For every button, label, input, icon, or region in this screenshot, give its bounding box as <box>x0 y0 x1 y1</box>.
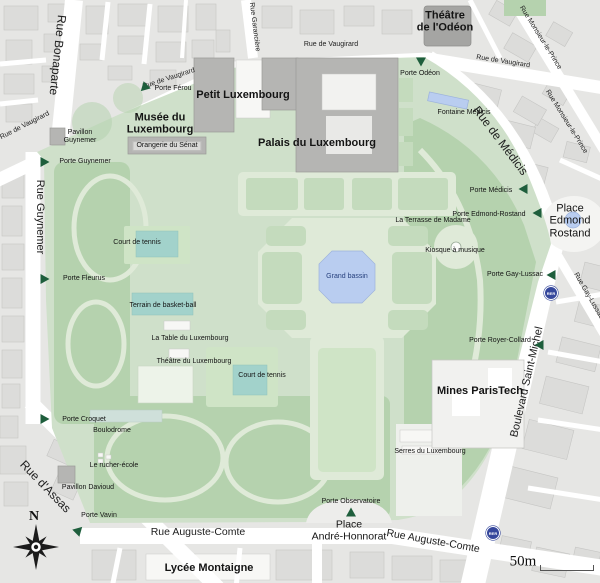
gate-label-porte-gay-lussac: Porte Gay-Lussac <box>487 271 543 279</box>
label-petit-luxembourg: Petit Luxembourg <box>196 89 290 101</box>
pavillon-davioud-building <box>58 466 75 483</box>
gate-marker-porte-observatoire <box>346 508 356 517</box>
street-label-vaugirard-center: Rue de Vaugirard <box>304 41 358 49</box>
gate-label-porte-royer-collard: Porte Royer-Collard <box>469 337 531 345</box>
gate-label-porte-croquet: Porte Croquet <box>62 416 106 424</box>
gate-marker-porte-gay-lussac <box>547 270 556 280</box>
label-table-luxembourg: La Table du Luxembourg <box>152 335 229 343</box>
table-luxembourg-building <box>164 321 190 330</box>
street-label-auguste-comte-west: Rue Auguste-Comte <box>151 527 246 539</box>
luxembourg-garden-map: Rue Bonaparte Rue de Vaugirard Rue de Va… <box>0 0 600 583</box>
gate-marker-porte-fleurus <box>41 274 50 284</box>
label-theatre-luxembourg: Théâtre du Luxembourg <box>157 358 232 366</box>
scale-bar <box>540 565 594 571</box>
tennis-south-court <box>233 365 267 395</box>
label-boulodrome: Boulodrome <box>93 427 131 435</box>
label-theatre-odeon: Théâtre de l'Odéon <box>417 10 473 35</box>
label-mines-paristech: Mines ParisTech <box>437 385 523 397</box>
gate-marker-porte-medicis <box>519 184 528 194</box>
label-palais-luxembourg: Palais du Luxembourg <box>258 137 376 149</box>
gate-label-porte-ferou: Porte Férou <box>155 85 192 93</box>
rer-station-icon-luxembourg-south: RER <box>486 526 500 540</box>
label-fontaine-medicis: Fontaine Médicis <box>438 109 491 117</box>
label-orangerie-senat: Orangerie du Sénat <box>132 141 201 151</box>
label-court-tennis-north: Court de tennis <box>113 239 160 247</box>
label-pavillon-davioud: Pavillon Davioud <box>62 484 114 492</box>
place-label-edmond-rostand: Place Edmond Rostand <box>550 203 591 240</box>
theatre-luxembourg-building <box>169 349 189 358</box>
gate-label-porte-guynemer: Porte Guynemer <box>59 158 110 166</box>
map-canvas <box>0 0 600 583</box>
label-pavillon-guynemer: Pavillon Guynemer <box>64 129 97 145</box>
label-terrain-basket: Terrain de basket-ball <box>130 302 197 310</box>
gate-marker-porte-odeon <box>416 58 426 67</box>
gate-marker-porte-royer-collard <box>535 340 544 350</box>
label-lycee-montaigne: Lycée Montaigne <box>165 562 254 574</box>
gate-label-porte-odeon: Porte Odéon <box>400 70 440 78</box>
rer-station-icon-luxembourg-north: RER <box>544 286 558 300</box>
label-serres-luxembourg: Serres du Luxembourg <box>394 448 465 456</box>
label-court-tennis-south: Court de tennis <box>238 372 285 380</box>
gate-label-porte-vavin: Porte Vavin <box>81 512 117 520</box>
label-kiosque-musique: Kiosque à musique <box>425 247 485 255</box>
theatre-luxembourg-hall <box>138 366 193 403</box>
street-label-rue-guynemer: Rue Guynemer <box>34 180 46 255</box>
gate-marker-porte-croquet <box>41 414 50 424</box>
gate-label-porte-fleurus: Porte Fleurus <box>63 275 105 283</box>
place-label-andre-honnorat: Place André-Honnorat <box>312 519 387 543</box>
gate-marker-porte-guynemer <box>41 157 50 167</box>
gate-label-porte-medicis: Porte Médicis <box>470 187 512 195</box>
palais-cour-honneur <box>322 74 376 110</box>
label-grand-bassin: Grand bassin <box>326 273 368 281</box>
scale-label: 50m <box>510 554 537 571</box>
compass-rose-icon <box>10 521 62 573</box>
gate-label-porte-observatoire: Porte Observatoire <box>322 498 381 506</box>
gate-marker-porte-edmond-rostand <box>533 208 542 218</box>
label-musee-luxembourg: Musée du Luxembourg <box>127 112 194 137</box>
label-rucher-ecole: Le rucher-école <box>90 462 139 470</box>
label-terrasse-madame: La Terrasse de Madame <box>395 217 470 225</box>
